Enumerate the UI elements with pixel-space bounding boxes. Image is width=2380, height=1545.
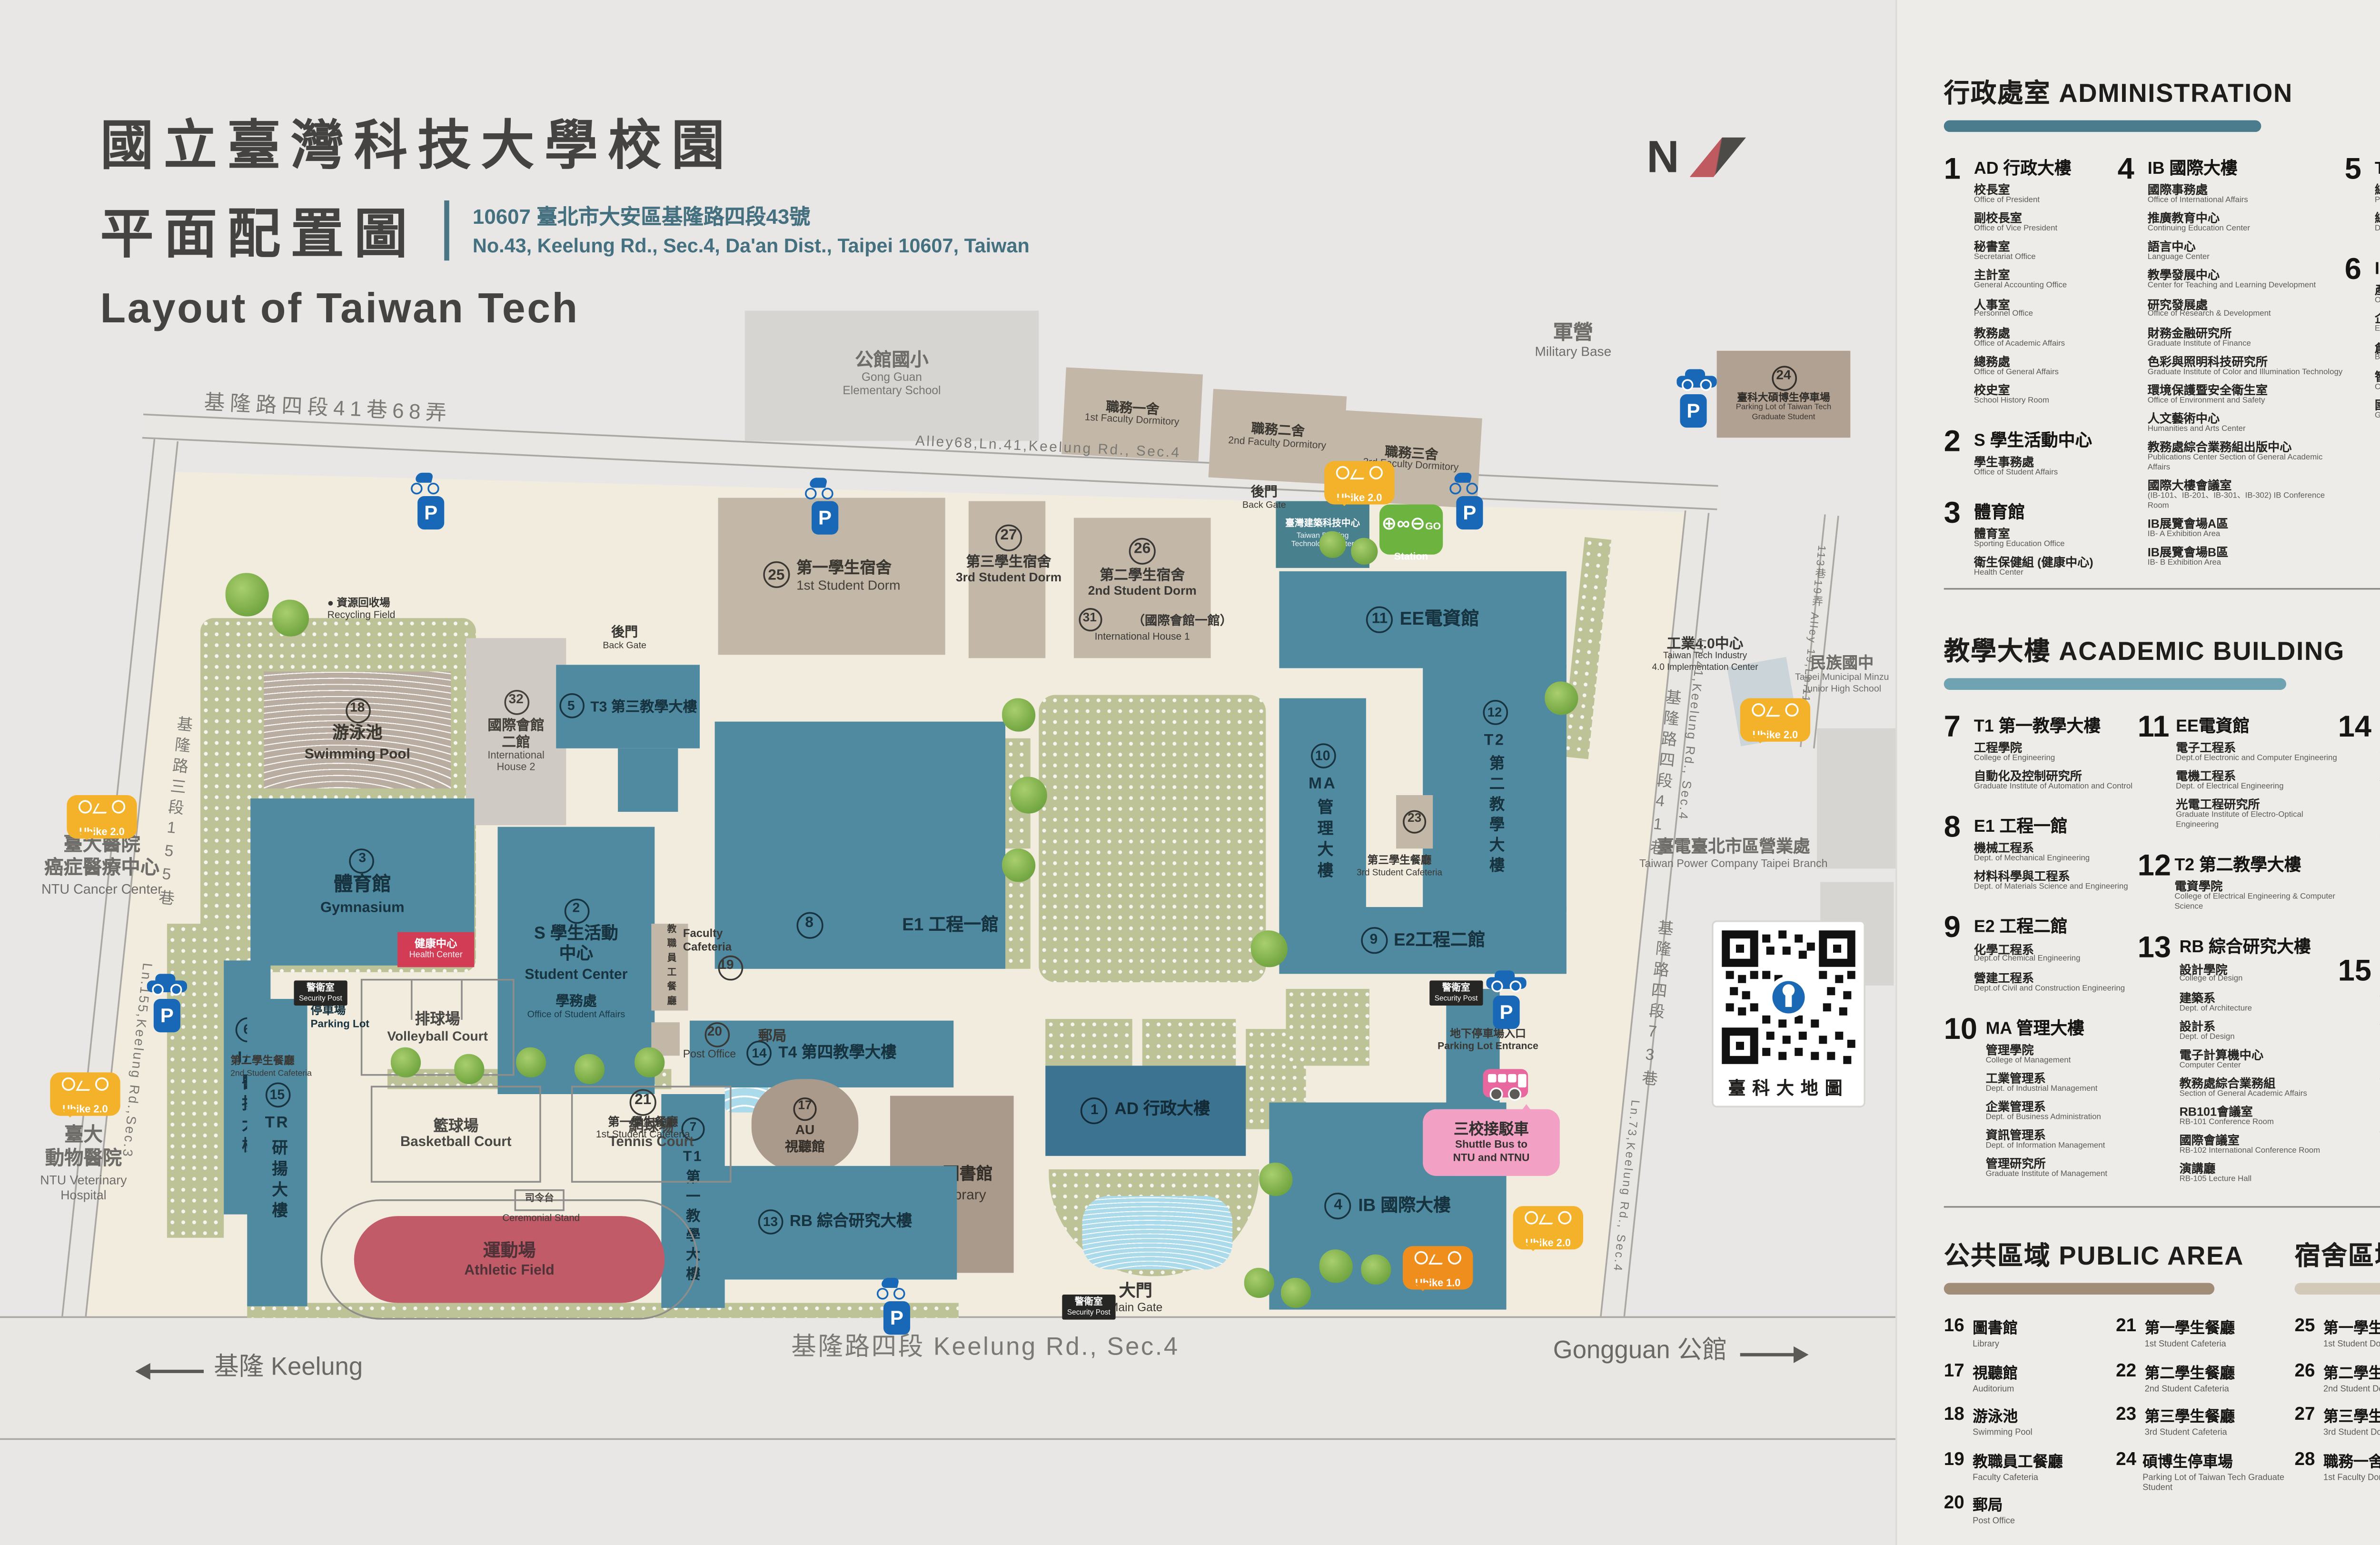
ubike20-badge-1: Ubike 2.0	[67, 795, 137, 838]
legend-item-name: AD 行政大樓	[1974, 154, 2072, 179]
legend-sub-en: Dept.of Chemical Engineering	[1974, 957, 2125, 967]
legend-item-number: 23	[2116, 1405, 2136, 1438]
lawn-11	[1286, 989, 1369, 1066]
swimming-pool: 18游泳池Swimming Pool	[264, 671, 451, 788]
legend-sub-en: Office of Vice President	[1974, 226, 2072, 236]
legend-sub-zh: 人事室	[1974, 298, 2072, 311]
legend-sub-zh: 教務處	[1974, 327, 2072, 340]
ubike-2-icon: Ubike 2.0	[1740, 698, 1810, 742]
label-cafeteria-21: 21第一學生餐廳1st Student Cafeteria	[568, 1089, 718, 1143]
legend-sub-en: Dept.of Civil and Construction Engineeri…	[1974, 985, 2125, 995]
legend-sub-en: Center for Intellectual Property	[2375, 383, 2380, 393]
legend-sub-en: Office of Industry-Academia Collaboratio…	[2375, 298, 2380, 308]
scooter-icon-2	[805, 478, 833, 499]
label: 12T2第二教學大樓	[1440, 700, 1549, 877]
qr-campus-map: 臺科大地圖	[1714, 922, 1864, 1106]
legend-item-number: 7	[1944, 712, 1966, 794]
legend-item-number: 19	[1944, 1449, 1964, 1483]
number-circle-18: 18	[345, 698, 370, 724]
legend-sub-en: Office of Research & Development	[2148, 311, 2345, 321]
legend-item-name: 職務一舍	[2323, 1449, 2380, 1471]
legend-sub-zh: 材料科學與工程系	[1974, 871, 2128, 885]
legend-sub-en: Graduate Institute of Electro-Optical En…	[2176, 812, 2338, 832]
legend-item-en: 3rd Student Dorm	[2323, 1428, 2380, 1438]
legend-sub-en: Dept. of Materials Science and Engineeri…	[1974, 884, 2128, 894]
legend-sub-zh: 建築系	[2180, 992, 2320, 1005]
legend-sub-en: Dept. of Mechanical Engineering	[1974, 856, 2128, 866]
legend-item-en: 1st Faculty Dormitory	[2323, 1473, 2380, 1483]
cafeteria-19-block: 教職員工餐廳	[651, 924, 688, 1010]
label: 13RB 綜合研究大樓	[758, 1209, 912, 1236]
security-post-tr: 警衛室Security Post	[294, 979, 347, 1009]
legend-sub-zh: 人文藝術中心	[2148, 412, 2345, 426]
legend-sub-en: Office of International Affairs	[2148, 197, 2345, 207]
number-circle-15: 15	[265, 1083, 290, 1108]
legend-sub-zh: 校長室	[1974, 184, 2072, 198]
building-rb: 13RB 綜合研究大樓	[713, 1166, 957, 1280]
go-station-badge: ⊕∞⊖GO Station	[1379, 505, 1443, 555]
legend-item-23: 23第三學生餐廳3rd Student Cafeteria	[2116, 1405, 2288, 1438]
shuttle-bus-callout: 三校接駁車Shuttle Bus toNTU and NTNU	[1423, 1109, 1560, 1176]
label-intl-house-1: 31（國際會館一館）International House 1	[1052, 608, 1232, 645]
legend-item-body: 第二學生宿舍2nd Student Dorm	[2323, 1361, 2380, 1394]
legend-item-en: Library	[1973, 1340, 2018, 1350]
number-circle-19: 19	[717, 956, 743, 981]
building-e2: 9E2工程二館	[1279, 907, 1566, 974]
legend-sub-zh: 設計學院	[2180, 963, 2320, 977]
legend-column: 4IB 國際大樓國際事務處Office of International Aff…	[2118, 154, 2345, 598]
number-circle-23: 23	[1403, 809, 1426, 833]
security-post-tag: 警衛室Security Post	[1062, 1295, 1115, 1319]
legend-sub-en: Center for Teaching and Learning Develop…	[2148, 283, 2345, 293]
qr-code	[1722, 930, 1855, 1064]
legend-sub-zh: 管理研究所	[1986, 1158, 2107, 1171]
legend-item-en: Swimming Pool	[1973, 1428, 2032, 1438]
legend-item-body: EE電資館電子工程系Dept.of Electronic and Compute…	[2176, 712, 2338, 833]
number-circle-5: 5	[559, 693, 584, 718]
legend-sub-en: Graduate Institute of Automation and Con…	[1974, 784, 2132, 794]
legend-sub-zh: 國際大樓會議室	[2148, 479, 2345, 493]
tree-8	[516, 1047, 546, 1077]
label: 15TR研揚大樓	[240, 1083, 315, 1222]
legend-item-name: IB 國際大樓	[2148, 154, 2345, 179]
section-title: 教學大樓 ACADEMIC BUILDING	[1944, 631, 2380, 668]
label: 5T3 第三教學大樓	[559, 693, 697, 720]
tree-12	[1281, 1278, 1311, 1308]
legend-item-en: 2nd Student Dorm	[2323, 1384, 2380, 1394]
car-icon	[147, 974, 187, 996]
number-circle-20: 20	[705, 1022, 731, 1047]
legend-sub-zh: 語言中心	[2148, 241, 2345, 255]
number-circle-9: 9	[1360, 926, 1387, 953]
label: 職務一舍1st Faculty Dormitory	[1084, 398, 1180, 430]
title-zh-line2: 平面配置圖	[100, 192, 418, 269]
legend-item-body: 職務一舍1st Faculty Dormitory	[2323, 1449, 2380, 1483]
number-circle-4: 4	[1325, 1192, 1351, 1218]
legend-sub-zh: 產學營運處	[2375, 285, 2380, 298]
cafeteria-23-block: 23	[1396, 795, 1433, 848]
label: 1AD 行政大樓	[1081, 1096, 1210, 1125]
tree-14	[1319, 1249, 1353, 1283]
legend-item-21: 21第一學生餐廳1st Student Cafeteria	[2116, 1316, 2288, 1350]
tree-10	[635, 1047, 664, 1077]
label: 18游泳池Swimming Pool	[305, 698, 410, 762]
label: 司令台	[525, 1195, 554, 1206]
legend-item-number: 17	[1944, 1361, 1964, 1394]
legend-item-number: 15	[2338, 955, 2371, 1151]
legend-item-en: Post Office	[1973, 1517, 2015, 1527]
shuttle-bus-icon	[1483, 1069, 1528, 1097]
scooter-icon-3	[1449, 473, 1478, 495]
section-public-area: 公共區域 PUBLIC AREA 16圖書館Library17視聽館Audito…	[1944, 1236, 2288, 1537]
legend-sub-zh: 副校長室	[1974, 213, 2072, 226]
lawn-8	[1045, 1019, 1132, 1066]
lawn-6	[1005, 868, 1031, 969]
legend-sub-zh: 色彩與照明科技研究所	[2148, 355, 2345, 369]
legend-column: 1AD 行政大樓校長室Office of President副校長室Office…	[1944, 154, 2118, 598]
legend-item-body: E2 工程二館化學工程系Dept.of Chemical Engineering…	[1974, 913, 2125, 995]
legend-item-name: 郵局	[1973, 1494, 2015, 1515]
scooter-icon	[877, 1278, 905, 1300]
tree-6	[391, 1047, 421, 1077]
legend-item-5: 5T3 第三教學大樓總務處保管組Property Management Divi…	[2345, 154, 2380, 236]
legend-item-16: 16圖書館Library	[1944, 1316, 2116, 1350]
legend-sub-zh: 企業管理系	[1986, 1101, 2107, 1114]
legend-item-body: E1 工程一館機械工程系Dept. of Mechanical Engineer…	[1974, 812, 2128, 895]
section-title: 宿舍區域 DORMITORY	[2295, 1236, 2380, 1273]
label-parking-lot-tr: 停車場Parking Lot	[311, 1006, 397, 1032]
legend-item-body: 第一學生餐廳1st Student Cafeteria	[2145, 1316, 2235, 1350]
number-circle-10: 10	[1310, 744, 1335, 769]
label: 11EE電資館	[1366, 606, 1479, 634]
legend-column: 25第一學生宿舍1st Student Dorm26第二學生宿舍2nd Stud…	[2295, 1316, 2380, 1494]
lawn-9	[1142, 1019, 1236, 1066]
p-parking-icon: P	[1680, 394, 1706, 428]
legend-item-name: 碩博生停車場	[2142, 1449, 2288, 1471]
legend-sub-zh: 電資學院	[2174, 881, 2338, 895]
legend-sub-en: Global Research & Industry Alliance	[2375, 412, 2380, 422]
legend-item-name: 第三學生宿舍	[2323, 1405, 2380, 1427]
label: 25第一學生宿舍1st Student Dorm	[763, 559, 901, 593]
section-academic-building: 教學大樓 ACADEMIC BUILDING 7T1 第一教學大樓工程學院Col…	[1944, 631, 2380, 1205]
tree-5	[1251, 930, 1288, 967]
label-military-base: 軍營Military Base	[1513, 321, 1634, 361]
legend-sub-en: Dept. of Design	[2180, 1033, 2320, 1043]
legend-item-number: 2	[1944, 426, 1966, 479]
legend-item-en: 1st Student Cafeteria	[2145, 1340, 2235, 1350]
legend-item-body: IA 醫揚大樓產學營運處Office of Industry-Academia …	[2375, 254, 2380, 422]
legend-item-body: 第一學生宿舍1st Student Dorm	[2323, 1316, 2380, 1350]
legend-column: 11EE電資館電子工程系Dept.of Electronic and Compu…	[2138, 712, 2338, 1205]
legend-sub-zh: 管理學院	[1986, 1044, 2107, 1057]
tree-4	[1002, 848, 1035, 882]
legend-sub-en: IB- B Exhibition Area	[2148, 560, 2345, 570]
legend-item-name: T2 第二教學大樓	[2174, 851, 2338, 876]
legend-sub-zh: 總務處檔案室	[2375, 213, 2380, 226]
security-post-tag: 警衛室Security Post	[294, 981, 347, 1005]
label: 2S 學生活動中心Student Center學務處Office of Stud…	[525, 899, 627, 1022]
legend-item-name: 教職員工餐廳	[1973, 1449, 2063, 1471]
legend-sub-en: (IB-101、IB-201、IB-301、IB-302) IB Confere…	[2148, 493, 2345, 513]
section-administration: 行政處室 ADMINISTRATION 1AD 行政大樓校長室Office of…	[1944, 73, 2380, 598]
legend-item-number: 1	[1944, 154, 1966, 407]
legend-item-body: IB 國際大樓國際事務處Office of International Affa…	[2148, 154, 2345, 570]
tree-2	[1002, 698, 1035, 732]
legend-item-2: 2S 學生活動中心學生事務處Office of Student Affairs	[1944, 426, 2118, 479]
label-ceremonial-stand: Ceremonial Stand	[491, 1215, 591, 1226]
scooter-icon	[805, 478, 833, 499]
title-block: 國立臺灣科技大學校園 平面配置圖 10607 臺北市大安區基隆路四段43號 No…	[100, 117, 1030, 335]
number-circle-13: 13	[758, 1209, 783, 1235]
legend-item-24: 24碩博生停車場Parking Lot of Taiwan Tech Gradu…	[2116, 1449, 2288, 1493]
number-circle-17: 17	[793, 1097, 816, 1121]
legend-item-name: 第二學生餐廳	[2145, 1361, 2235, 1383]
legend-sub-zh: 總務處保管組	[2375, 184, 2380, 198]
parking-icon-2: P	[812, 501, 838, 535]
legend-sub-en: Office of Environment and Safety	[2148, 397, 2345, 407]
tree-0	[226, 573, 269, 616]
legend-item-number: 13	[2138, 933, 2171, 1186]
ubike-1-icon: Ubike 1.0	[1403, 1246, 1473, 1289]
legend-item-number: 22	[2116, 1361, 2136, 1394]
security-post-main-gate: 警衛室Security Post	[1062, 1293, 1115, 1323]
legend-item-number: 24	[2116, 1449, 2134, 1493]
legend-sub-zh: 國際產學聯盟推動辦公室	[2375, 399, 2380, 412]
legend-item-name: EE電資館	[2176, 712, 2338, 737]
basketball-court: 籃球場Basketball Court	[371, 1086, 541, 1182]
car-icon	[1486, 970, 1526, 992]
legend-sub-en: Personnel Office	[1974, 311, 2072, 321]
legend-sub-en: Office of General Affairs	[1974, 369, 2072, 379]
address-en: No.43, Keelung Rd., Sec.4, Da'an Dist., …	[473, 233, 1030, 260]
legend-item-name: T3 第三教學大樓	[2375, 154, 2380, 179]
label: 17AU視聽館	[785, 1097, 825, 1154]
legend-sub-zh: 工程學院	[1974, 742, 2132, 755]
legend-sub-en: Section of General Academic Affairs	[2180, 1090, 2320, 1100]
label-dorm-26: 26第二學生宿舍2nd Student Dorm	[1059, 538, 1226, 598]
security-post-east: 警衛室Security Post	[1429, 979, 1483, 1009]
ubike20-badge-3: Ubike 2.0	[1324, 461, 1394, 504]
number-circle-31: 31	[1078, 608, 1101, 631]
legend-sub-en: Documentation Division of General Affair…	[2375, 226, 2380, 236]
number-circle-12: 12	[1482, 700, 1507, 725]
legend-sub-zh: 環境保護暨安全衛生室	[2148, 384, 2345, 397]
legend-item-number: 6	[2345, 254, 2367, 422]
legend-item-body: 圖書館Library	[1973, 1316, 2018, 1350]
legend-sub-zh: RB101會議室	[2180, 1106, 2320, 1119]
ubike20-badge-4: Ubike 2.0	[1740, 698, 1810, 742]
number-circle-24: 24	[1771, 365, 1796, 390]
label: 3體育館Gymnasium	[320, 848, 405, 915]
title-en: Layout of Taiwan Tech	[100, 286, 1030, 335]
legend-sub-zh: 智財推廣中心	[2375, 370, 2380, 384]
legend-item-body: 碩博生停車場Parking Lot of Taiwan Tech Graduat…	[2142, 1449, 2288, 1493]
legend-column: 5T3 第三教學大樓總務處保管組Property Management Divi…	[2345, 154, 2380, 598]
legend-item-number: 20	[1944, 1494, 1964, 1527]
legend-sub-en: Dept. of Business Administration	[1986, 1114, 2107, 1124]
legend-item-en: Faculty Cafeteria	[1973, 1473, 2063, 1483]
number-circle-25: 25	[763, 562, 790, 589]
parking-icon-6: P	[883, 1301, 910, 1335]
legend-item-name: RB 綜合研究大樓	[2180, 933, 2320, 958]
number-circle-26: 26	[1129, 538, 1156, 565]
legend-sub-zh: 教學發展中心	[2148, 269, 2345, 283]
label-cafeteria-23: 第三學生餐廳3rd Student Cafeteria	[1333, 855, 1467, 879]
ubike-2-icon: Ubike 2.0	[50, 1072, 120, 1116]
shuttle-callout: 三校接駁車Shuttle Bus toNTU and NTNU	[1423, 1109, 1560, 1176]
legend-sub-en: Property Management Division of General …	[2375, 197, 2380, 207]
label-back-gate-east: 後門Back Gate	[1228, 484, 1301, 511]
legend-sub-en: Humanities and Arts Center	[2148, 426, 2345, 436]
legend-sub-zh: 資訊管理系	[1986, 1129, 2107, 1143]
number-circle-32: 32	[504, 689, 529, 715]
p-parking-icon: P	[154, 999, 180, 1032]
number-circle-11: 11	[1366, 606, 1393, 632]
p-parking-icon: P	[1493, 996, 1520, 1029]
legend-sub-en: Health Center	[1974, 570, 2093, 580]
parking-icon-3: P	[1456, 496, 1483, 529]
legend-sub-en: Dept. of Industrial Management	[1986, 1086, 2107, 1096]
legend-item-name: 視聽館	[1973, 1361, 2018, 1383]
legend-column: 16圖書館Library17視聽館Auditorium18游泳池Swimming…	[1944, 1316, 2116, 1538]
legend-sub-zh: 化學工程系	[1974, 943, 2125, 957]
legend-sub-en: IB- A Exhibition Area	[2148, 531, 2345, 541]
number-circle-2: 2	[564, 899, 589, 924]
legend-item-name: 第二學生宿舍	[2323, 1361, 2380, 1383]
number-circle-3: 3	[350, 848, 375, 874]
legend-item-name: 第一學生餐廳	[2145, 1316, 2235, 1338]
arrow-gongguan	[1740, 1353, 1804, 1357]
intl-house-2: 32國際會館二館InternationalHouse 2	[466, 638, 566, 825]
legend-item-4: 4IB 國際大樓國際事務處Office of International Aff…	[2118, 154, 2345, 570]
legend-sub-zh: IB展覽會場B區	[2148, 547, 2345, 560]
scooter-icon-4	[877, 1278, 905, 1300]
athletic-field: 運動場Athletic Field	[354, 1216, 665, 1303]
legend-item-name: 第一學生宿舍	[2323, 1316, 2380, 1338]
legend-sub-en: Business Incubation Center	[2375, 355, 2380, 365]
legend-sidebar: 行政處室 ADMINISTRATION 1AD 行政大樓校長室Office of…	[1895, 0, 2380, 1545]
building-ma: 10MA管理大樓	[1279, 698, 1366, 929]
legend-sub-zh: IB展覽會場A區	[2148, 518, 2345, 531]
legend-item-name: 體育館	[1974, 498, 2093, 523]
title-zh-line1: 國立臺灣科技大學校園	[100, 117, 1030, 176]
tree-3	[1011, 777, 1047, 813]
legend-sub-en: Office of Academic Affairs	[1974, 340, 2072, 350]
legend-item-name: E2 工程二館	[1974, 913, 2125, 938]
title-divider	[444, 201, 449, 261]
legend-sub-zh: 企業服務中心	[2375, 313, 2380, 327]
legend-item-name: S 學生活動中心	[1974, 426, 2092, 451]
legend-sub-zh: 教務處綜合業務組出版中心	[2148, 441, 2345, 454]
label-parking-entrance: 地下停車場入口Parking Lot Entrance	[1416, 1029, 1560, 1054]
label: 4IB 國際大樓	[1325, 1192, 1451, 1220]
section-bar	[2295, 1283, 2380, 1295]
health-center: 健康中心Health Center	[397, 932, 474, 967]
legend-item-name: 游泳池	[1973, 1405, 2032, 1427]
building-ad: 1AD 行政大樓	[1045, 1066, 1246, 1156]
legend-sub-zh: 工業管理系	[1986, 1072, 2107, 1086]
section-title: 公共區域 PUBLIC AREA	[1944, 1236, 2288, 1273]
divider	[1944, 1206, 2380, 1208]
building-tr: 15TR研揚大樓	[247, 999, 307, 1306]
legend-item-name: MA 管理大樓	[1986, 1013, 2107, 1038]
legend-item-number: 4	[2118, 154, 2140, 570]
legend-sub-en: College of Management	[1986, 1057, 2107, 1067]
legend-item-name: 第三學生餐廳	[2145, 1405, 2235, 1427]
legend-item-name: E1 工程一館	[1974, 812, 2128, 837]
legend-sub-zh: 創新育成中心	[2375, 342, 2380, 355]
ubike-2-icon: Ubike 2.0	[67, 795, 137, 838]
legend-item-body: 視聽館Auditorium	[1973, 1361, 2018, 1394]
legend-sub-zh: 秘書室	[1974, 241, 2072, 255]
legend-sub-en: Continuing Education Center	[2148, 226, 2345, 236]
legend-item-19: 19教職員工餐廳Faculty Cafeteria	[1944, 1449, 2116, 1483]
ubike20-badge-5: Ubike 2.0	[1513, 1206, 1583, 1249]
divider	[1944, 588, 2380, 590]
label-cafeteria-22: 第二學生餐廳2nd Student Cafeteria	[230, 1056, 351, 1078]
legend-item-27: 27第三學生宿舍3rd Student Dorm	[2295, 1405, 2380, 1438]
legend-item-11: 11EE電資館電子工程系Dept.of Electronic and Compu…	[2138, 712, 2338, 833]
qr-code-card: 臺科大地圖	[1714, 922, 1864, 1106]
legend-item-body: 第三學生宿舍3rd Student Dorm	[2323, 1405, 2380, 1438]
legend-item-body: T3 第三教學大樓總務處保管組Property Management Divis…	[2375, 154, 2380, 236]
label: 9E2工程二館	[1360, 926, 1486, 955]
road-label-keelung: 基隆 Keelung	[214, 1353, 447, 1383]
car-icon-1	[147, 974, 187, 996]
building-t3-annex	[618, 748, 678, 812]
security-post-tag: 警衛室Security Post	[1429, 981, 1483, 1005]
legend-item-6: 6IA 醫揚大樓產學營運處Office of Industry-Academia…	[2345, 254, 2380, 422]
legend-item-number: 14	[2338, 712, 2371, 937]
legend-item-25: 25第一學生宿舍1st Student Dorm	[2295, 1316, 2380, 1350]
number-circle-1: 1	[1081, 1096, 1108, 1123]
legend-item-en: 1st Student Dorm	[2323, 1340, 2380, 1350]
label: 排球場Volleyball Court	[387, 1010, 488, 1044]
legend-sub-zh: 研究發展處	[2148, 298, 2345, 311]
legend-sub-en: College of Design	[2180, 976, 2320, 986]
pond-main-gate	[1082, 1196, 1232, 1269]
p-parking-icon: P	[417, 496, 444, 529]
legend-sub-zh: 衛生保健組 (健康中心)	[1974, 557, 2093, 570]
p-parking-icon: P	[812, 501, 838, 535]
legend-sub-zh: 校史室	[1974, 384, 2072, 397]
legend-sub-en: Graduate Institute of Management	[1986, 1171, 2107, 1181]
legend-sub-zh: 國際會議室	[2180, 1135, 2320, 1148]
legend-sub-zh: 總務處	[1974, 355, 2072, 369]
legend-sub-en: College of Electrical Engineering & Comp…	[2174, 894, 2338, 914]
legend-item-body: 郵局Post Office	[1973, 1494, 2015, 1527]
legend-item-body: AD 行政大樓校長室Office of President副校長室Office …	[1974, 154, 2072, 407]
legend-item-en: 3rd Student Cafeteria	[2145, 1428, 2235, 1438]
legend-sub-zh: 推廣教育中心	[2148, 213, 2345, 226]
legend-sub-en: Dept. of Electrical Engineering	[2176, 784, 2338, 794]
p-parking-icon: P	[1456, 496, 1483, 529]
legend-sub-en: General Accounting Office	[1974, 283, 2072, 293]
legend-item-15: 15TR 研揚大樓應用科技學院College of Applied Scienc…	[2338, 955, 2380, 1151]
scooter-icon-1	[411, 473, 439, 495]
legend-item-7: 7T1 第一教學大樓工程學院College of Engineering自動化及…	[1944, 712, 2138, 794]
legend-item-body: 第三學生餐廳3rd Student Cafeteria	[2145, 1405, 2235, 1438]
legend-sub-zh: 國際事務處	[2148, 184, 2345, 198]
legend-item-en: Parking Lot of Taiwan Tech Graduate Stud…	[2142, 1473, 2288, 1493]
legend-sub-en: Office of President	[1974, 197, 2072, 207]
label-cafeteria-19: FacultyCafeteria19	[683, 929, 776, 983]
legend-sub-en: Sporting Education Office	[1974, 541, 2093, 551]
legend-item-9: 9E2 工程二館化學工程系Dept.of Chemical Engineerin…	[1944, 913, 2138, 995]
legend-column: 7T1 第一教學大樓工程學院College of Engineering自動化及…	[1944, 712, 2138, 1205]
building-t3: 5T3 第三教學大樓	[556, 665, 700, 748]
tree-9	[575, 1054, 605, 1084]
